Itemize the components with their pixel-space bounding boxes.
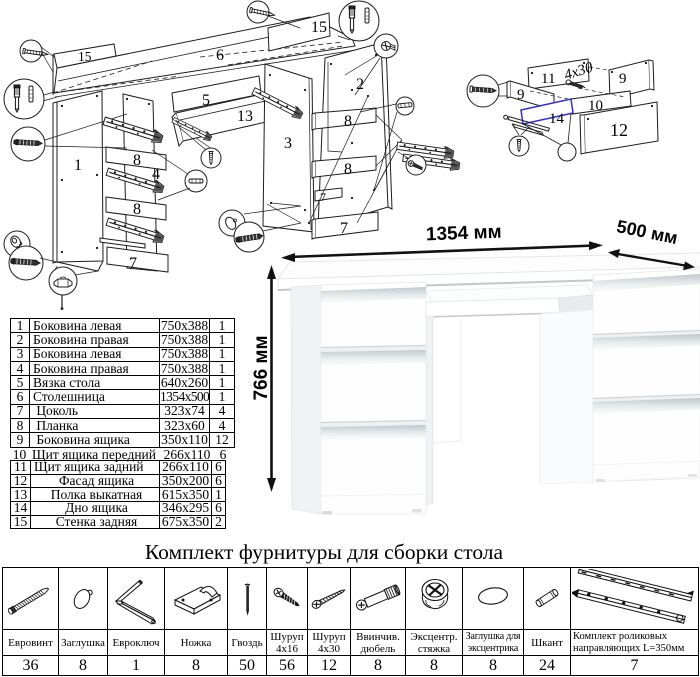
- svg-text:8: 8: [344, 113, 352, 130]
- svg-text:5: 5: [202, 92, 210, 109]
- svg-text:10: 10: [588, 98, 603, 114]
- svg-text:9: 9: [517, 87, 525, 103]
- svg-text:7: 7: [320, 190, 326, 204]
- svg-text:15: 15: [311, 19, 327, 36]
- svg-text:12: 12: [610, 120, 628, 140]
- svg-text:9: 9: [619, 71, 627, 87]
- svg-text:14: 14: [549, 111, 565, 127]
- svg-text:15: 15: [78, 49, 92, 64]
- svg-text:3: 3: [284, 135, 292, 152]
- svg-text:8: 8: [133, 201, 141, 218]
- svg-text:8: 8: [133, 152, 141, 169]
- svg-text:1354 мм: 1354 мм: [426, 222, 502, 246]
- svg-text:8: 8: [344, 161, 352, 178]
- svg-text:11: 11: [541, 71, 555, 87]
- svg-text:6: 6: [216, 47, 224, 64]
- svg-text:766 мм: 766 мм: [251, 335, 272, 400]
- svg-text:4: 4: [152, 166, 160, 183]
- svg-text:7: 7: [129, 255, 137, 272]
- svg-text:13: 13: [237, 108, 253, 125]
- svg-text:1: 1: [74, 157, 82, 174]
- svg-text:500 мм: 500 мм: [615, 218, 679, 248]
- svg-text:2: 2: [356, 76, 364, 93]
